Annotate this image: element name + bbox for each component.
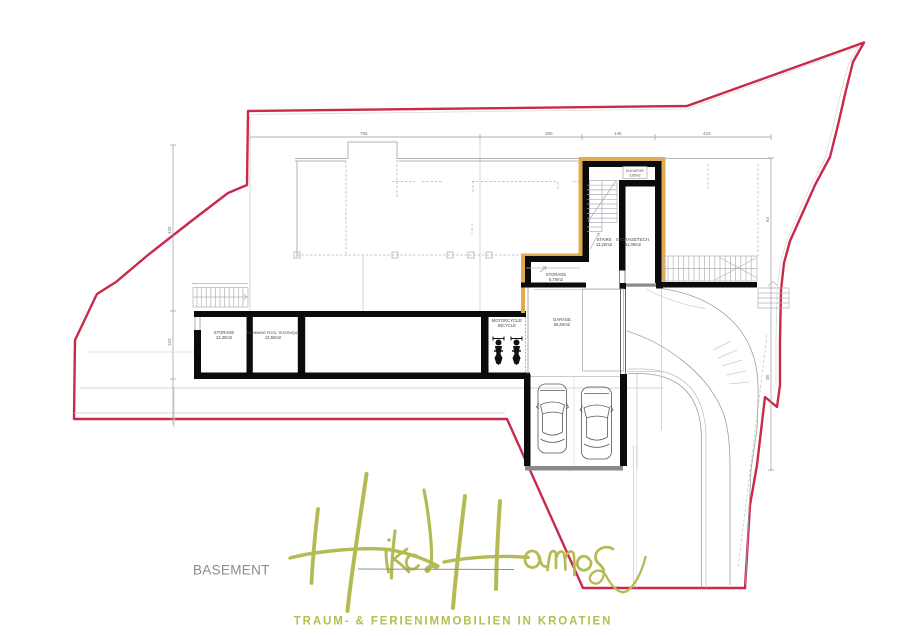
svg-text:38: 38 bbox=[765, 374, 770, 380]
svg-text:423: 423 bbox=[703, 131, 711, 136]
svg-text:3,85m2: 3,85m2 bbox=[629, 174, 640, 178]
svg-text:BICYCLE: BICYCLE bbox=[498, 323, 516, 328]
svg-text:BASEMENT: BASEMENT bbox=[193, 563, 270, 578]
svg-text:5,70m2: 5,70m2 bbox=[549, 277, 564, 282]
svg-text:55,00m2: 55,00m2 bbox=[554, 322, 571, 327]
svg-text:TRAUM- & FERIENIMMOBILIEN IN K: TRAUM- & FERIENIMMOBILIEN IN KROATIEN bbox=[294, 616, 613, 628]
svg-text:63: 63 bbox=[765, 216, 770, 222]
svg-text:380: 380 bbox=[545, 131, 553, 136]
svg-text:153: 153 bbox=[167, 338, 172, 346]
svg-text:11,00m2: 11,00m2 bbox=[625, 242, 642, 247]
svg-text:13,50m2: 13,50m2 bbox=[265, 335, 282, 340]
svg-text:425: 425 bbox=[167, 226, 172, 234]
svg-text:ELEVATOR: ELEVATOR bbox=[626, 169, 644, 173]
svg-text:13,20m2: 13,20m2 bbox=[596, 242, 613, 247]
svg-text:795: 795 bbox=[360, 131, 368, 136]
svg-text:13,30m2: 13,30m2 bbox=[216, 335, 233, 340]
svg-text:145: 145 bbox=[614, 131, 622, 136]
